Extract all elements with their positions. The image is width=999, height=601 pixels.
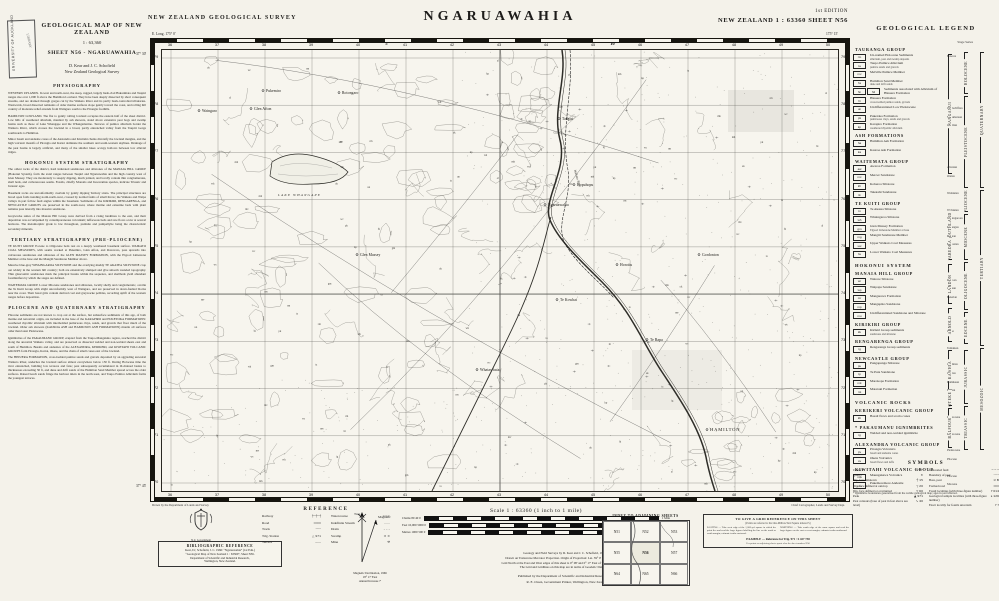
- stipple-dot: [804, 403, 805, 404]
- stipple-dot: [256, 421, 257, 422]
- section-paragraph: Basement rocks are unconformably overlai…: [8, 191, 146, 212]
- stipple-dot: [568, 478, 569, 479]
- reference-label: Terrace: [262, 540, 272, 544]
- legend-swatches: uw: [853, 242, 867, 249]
- stipple-dot: [831, 286, 832, 287]
- unit-code-label: wh: [484, 154, 488, 157]
- stipple-dot: [655, 453, 656, 454]
- legend-swatches: tn: [853, 208, 867, 215]
- stipple-dot: [649, 58, 650, 59]
- legend-entry-label: Taupo Pumice Alluviumpumice sands and gr…: [867, 62, 945, 69]
- swamp-symbol: [516, 463, 519, 465]
- contour-line: [526, 180, 536, 194]
- unit-code-label: mv: [675, 311, 679, 314]
- contour-line: [426, 188, 453, 196]
- unit-code-label: wc: [785, 323, 789, 326]
- stipple-dot: [661, 479, 662, 480]
- stipple-dot: [637, 121, 638, 122]
- declination-text: Magnetic Declination, 196618° 17' EastAn…: [340, 571, 400, 583]
- stipple-dot: [517, 255, 518, 256]
- scale-bar-left-label: Feet 10,000 5000 0: [402, 523, 426, 527]
- symbol-glyph: ┄┄┄: [992, 474, 999, 478]
- stipple-dot: [478, 480, 479, 481]
- contour-line: [214, 354, 237, 362]
- stipple-dot: [505, 248, 506, 249]
- contour-line: [271, 255, 308, 263]
- stipple-dot: [596, 211, 597, 212]
- stipple-dot: [563, 219, 564, 220]
- marginal-text-column: UNIVERSITY OF AUCKLAND LIBRARY GEOLOGICA…: [8, 16, 146, 383]
- unit-code-label: wc: [685, 343, 689, 346]
- stipple-dot: [492, 403, 493, 404]
- reference-glyph: ┼─┼─┼: [312, 514, 321, 518]
- stipple-dot: [202, 427, 203, 428]
- stipple-dot: [564, 255, 565, 256]
- town-dot: [706, 429, 708, 431]
- contour-line: [338, 449, 357, 470]
- stipple-dot: [622, 321, 623, 322]
- stream-line: [495, 374, 525, 409]
- stream-line: [789, 253, 801, 264]
- stipple-dot: [570, 388, 571, 389]
- stipple-dot: [469, 308, 470, 309]
- stipple-dot: [347, 393, 348, 394]
- stipple-dot: [769, 157, 770, 158]
- unit-code-label: mh: [732, 136, 736, 139]
- stipple-dot: [644, 100, 645, 101]
- legend-swatches: pv: [853, 448, 867, 455]
- stipple-dot: [801, 295, 802, 296]
- index-sheet-cell: N57: [660, 542, 689, 563]
- stipple-dot: [730, 384, 731, 385]
- stipple-dot: [301, 458, 302, 459]
- contour-line: [522, 195, 546, 213]
- swamp-symbol: [526, 337, 529, 339]
- symbol-row: Dip, face unknown┼ 15: [853, 479, 923, 483]
- unit-code-label: ig: [603, 146, 606, 149]
- grid-northing-left: 70: [154, 480, 158, 484]
- stipple-dot: [829, 434, 830, 435]
- legend-entry-label: Awaroa Formation: [867, 165, 945, 169]
- grid-easting-bottom: 47: [685, 493, 689, 497]
- stipple-dot: [785, 443, 786, 444]
- stipple-dot: [828, 393, 829, 394]
- legend-swatches: kk: [853, 329, 867, 336]
- reference-label: Trig. Station: [262, 534, 279, 538]
- stream-line: [634, 60, 649, 67]
- stipple-dot: [482, 201, 483, 202]
- legend-swatch: rg: [853, 346, 866, 353]
- stipple-dot: [625, 88, 626, 89]
- legend-entry-label: Mangarewa Formation: [867, 295, 945, 299]
- stipple-dot: [455, 420, 456, 421]
- stipple-dot: [419, 489, 420, 490]
- stipple-dot: [763, 408, 764, 409]
- stipple-dot: [603, 279, 604, 280]
- stipple-dot: [610, 435, 611, 436]
- unit-code-label: pk: [568, 74, 571, 77]
- stipple-dot: [652, 388, 653, 389]
- waikato-river: [548, 50, 715, 491]
- stream-line: [778, 239, 792, 297]
- stipple-dot: [458, 484, 459, 485]
- stipple-dot: [788, 463, 789, 464]
- stream-line: [167, 311, 183, 332]
- swamp-symbol: [520, 118, 523, 120]
- swamp-symbol: [504, 444, 507, 446]
- stipple-dot: [553, 155, 554, 156]
- symbol-row: Concealed fault─ ─ ─: [929, 469, 999, 473]
- stipple-dot: [591, 55, 592, 56]
- legend-swatch: mk: [853, 380, 866, 387]
- legend-entry-label: Wairere Siltstone: [867, 278, 945, 282]
- contour-line: [361, 153, 390, 163]
- stream-line: [478, 249, 501, 274]
- stipple-dot: [481, 167, 482, 168]
- stipple-dot: [657, 202, 658, 203]
- stipple-dot: [506, 453, 507, 454]
- unit-code-label: mh: [259, 195, 263, 198]
- stipple-dot: [754, 199, 755, 200]
- stipple-dot: [326, 429, 327, 430]
- legend-swatches: kh: [853, 183, 867, 190]
- stipple-dot: [474, 165, 475, 166]
- stipple-dot: [666, 236, 667, 237]
- contour-line: [540, 87, 555, 100]
- contour-line: [712, 411, 723, 424]
- contour-line: [176, 170, 186, 190]
- coat-of-arms: N.Z. Government: [186, 508, 216, 542]
- place-label: Gordonton: [702, 253, 719, 257]
- grid-northing-left: 73: [154, 338, 158, 342]
- contour-line: [424, 334, 436, 347]
- grid-easting-top: 42: [450, 43, 454, 47]
- stipple-dot: [739, 278, 740, 279]
- stipple-dot: [820, 112, 821, 113]
- legend-entry-name: Te Puia Sandstone: [870, 371, 945, 375]
- swamp-symbol: [568, 130, 571, 132]
- legend-swatches: hi: [853, 97, 867, 104]
- stipple-dot: [820, 319, 821, 320]
- legend-entry-name: Waipapa Sandstone: [870, 286, 945, 290]
- stipple-dot: [695, 97, 696, 98]
- contour-line: [737, 392, 746, 403]
- stipple-dot: [640, 129, 641, 130]
- index-sheet-cell: N53: [660, 521, 689, 542]
- neatline-right: [845, 38, 850, 502]
- legend-entry-label: Puketoka Formationpumiceous clays, sands…: [867, 115, 945, 122]
- stipple-dot: [706, 382, 707, 383]
- stipple-dot: [602, 393, 603, 394]
- reference-label: Drain: [331, 527, 339, 531]
- legend-entry-label: Te Puia Sandstone: [867, 371, 945, 375]
- stipple-dot: [734, 276, 735, 277]
- legend-entry-description: dune and drift sands: [870, 83, 945, 86]
- map-canvas: whkphiigwcokalwcmhgmwcmhigunwcgmwcpkokhi…: [162, 50, 838, 491]
- stipple-dot: [407, 417, 408, 418]
- stream-line: [514, 243, 552, 254]
- stipple-dot: [305, 380, 306, 381]
- swamp-symbol: [652, 286, 655, 288]
- latitude-top-label: 37° 30': [136, 52, 146, 56]
- unit-code-label: ta: [171, 483, 174, 486]
- unit-code-label: rm: [340, 140, 344, 143]
- contour-line: [732, 416, 751, 423]
- contour-line: [270, 392, 280, 407]
- stipple-dot: [623, 106, 624, 107]
- grid-northing-left: 75: [154, 244, 158, 248]
- stipple-dot: [559, 88, 560, 89]
- legend-entry: hsHamilton Sand Memberdune and drift san…: [853, 80, 971, 87]
- legend-entry-name: Hamilton Ash Formation: [870, 140, 945, 144]
- stipple-dot: [644, 52, 645, 53]
- stipple-dot: [830, 387, 831, 388]
- stipple-dot: [635, 182, 636, 183]
- stipple-dot: [362, 390, 363, 391]
- stipple-dot: [673, 258, 674, 259]
- stipple-dot: [789, 362, 790, 363]
- legend-entry: khKoheroa Siltstone: [853, 183, 971, 190]
- stream-line: [386, 391, 402, 420]
- legend-swatch: ha: [853, 140, 866, 147]
- legend-entry-name: Pungapunga Siltstone: [870, 362, 945, 366]
- stipple-dot: [502, 327, 503, 328]
- era-bracket: QUATERNARY: [980, 52, 983, 188]
- stipple-dot: [409, 421, 410, 422]
- coat-of-arms-icon: [186, 508, 216, 534]
- stipple-dot: [612, 276, 613, 277]
- stipple-dot: [637, 469, 638, 470]
- legend-swatch: mu: [853, 312, 866, 319]
- symbol-label: Dip, face defined at outcrop: [853, 485, 888, 489]
- grid-reference-northing: NORTHING — Take south edge of the same s…: [780, 526, 849, 535]
- stipple-dot: [594, 226, 595, 227]
- stipple-dot: [831, 275, 832, 276]
- reference-row: Track╌╌╌: [262, 527, 321, 531]
- stipple-dot: [599, 191, 600, 192]
- stipple-dot: [626, 232, 627, 233]
- stipple-dot: [231, 407, 232, 408]
- stipple-dot: [827, 444, 828, 445]
- stipple-dot: [507, 418, 508, 419]
- legend-entry-name: Welded and non-welded ignimbrite: [870, 432, 945, 436]
- town-dot: [544, 204, 546, 206]
- stipple-dot: [755, 314, 756, 315]
- stipple-dot: [552, 404, 553, 405]
- symbol-row: Bore, peat⊙ B: [929, 479, 999, 483]
- legend-swatches: ha: [853, 140, 867, 147]
- symbol-glyph: s 126: [989, 495, 999, 502]
- reference-glyph: △ 971: [312, 534, 321, 538]
- symbol-label: Peak: [853, 495, 859, 499]
- stipple-dot: [621, 451, 622, 452]
- grid-northing-right: 73: [841, 338, 845, 342]
- legend-entry-description: Elgood Limestone Member at base: [870, 229, 945, 232]
- swamp-symbol: [661, 188, 664, 190]
- unit-code-label: pk: [517, 314, 520, 317]
- stipple-dot: [245, 470, 246, 471]
- epoch-bracket: PLIOCENE: [964, 190, 967, 212]
- legend-swatch: wh: [853, 216, 866, 223]
- stipple-dot: [709, 247, 710, 248]
- stipple-dot: [777, 331, 778, 332]
- stipple-dot: [322, 443, 323, 444]
- stipple-dot: [792, 332, 793, 333]
- stipple-dot: [491, 388, 492, 389]
- stipple-dot: [652, 323, 653, 324]
- index-sheet-cell: N55: [603, 542, 632, 563]
- stipple-dot: [806, 386, 807, 387]
- stipple-dot: [394, 412, 395, 413]
- contour-line: [249, 309, 264, 330]
- unit-code-label: ok: [335, 183, 338, 186]
- legend-swatches: ka: [853, 149, 867, 156]
- stipple-dot: [309, 413, 310, 414]
- contour-line: [399, 412, 425, 427]
- stipple-dot: [762, 109, 763, 110]
- legend-entry-name: Undifferentiated Low Pleistocene: [870, 106, 945, 110]
- stipple-dot: [807, 352, 808, 353]
- stipple-dot: [692, 279, 693, 280]
- stipple-dot: [717, 87, 718, 88]
- stipple-dot: [699, 57, 700, 58]
- stipple-dot: [434, 403, 435, 404]
- stipple-dot: [614, 125, 615, 126]
- stamp-subtext: LIBRARY: [26, 33, 33, 48]
- swamp-symbol: [796, 389, 799, 391]
- contour-line: [297, 231, 327, 244]
- stipple-dot: [756, 424, 757, 425]
- stipple-dot: [476, 242, 477, 243]
- symbol-row: Dip, face defined or overturned┭ 60: [853, 490, 923, 494]
- stipple-dot: [826, 192, 827, 193]
- unit-code-label: wh: [586, 195, 590, 198]
- contour-line: [804, 434, 815, 446]
- stipple-dot: [660, 430, 661, 431]
- stipple-dot: [546, 342, 547, 343]
- stipple-dot: [739, 278, 740, 279]
- legend-swatches: wp: [853, 286, 867, 293]
- grid-easting-bottom: 44: [544, 493, 548, 497]
- stipple-dot: [525, 356, 526, 357]
- swamp-symbol: [774, 299, 777, 301]
- unit-code-label: ok: [742, 165, 745, 168]
- unit-code-label: mv: [738, 221, 742, 224]
- stipple-dot: [732, 337, 733, 338]
- stipple-dot: [686, 136, 687, 137]
- place-label: Ngaruawahia: [548, 203, 569, 207]
- stipple-dot: [347, 419, 348, 420]
- grid-easting-top: 49: [779, 43, 783, 47]
- road-line: [212, 174, 671, 443]
- unit-code-label: al: [821, 225, 823, 228]
- stipple-dot: [258, 446, 259, 447]
- legend-column-headers: Stage Series: [853, 40, 999, 44]
- contour-line: [394, 83, 419, 99]
- legend-entry-name: Awaroa Formation: [870, 165, 945, 169]
- symbol-row: Dip, face defined at outcrop┬ 20: [853, 485, 923, 489]
- unit-code-label: wh: [248, 365, 252, 368]
- stipple-dot: [711, 360, 712, 361]
- stipple-dot: [803, 150, 804, 151]
- stipple-dot: [646, 77, 647, 78]
- legend-swatches: hnh2: [853, 88, 881, 95]
- symbol-glyph: ────: [914, 469, 923, 473]
- stipple-dot: [811, 440, 812, 441]
- legend-entry: igWelded and non-welded ignimbritePleist…: [853, 432, 971, 439]
- swamp-symbol: [513, 277, 516, 279]
- stipple-dot: [476, 417, 477, 418]
- contour-line: [423, 207, 457, 227]
- unit-code-label: ta: [687, 69, 690, 72]
- stipple-dot: [526, 108, 527, 109]
- authors-line: D. Kear and J. C. Schofield: [38, 63, 146, 68]
- swamp-symbol: [669, 445, 672, 447]
- symbol-row: Contact────: [853, 469, 923, 473]
- stipple-dot: [269, 478, 270, 479]
- stipple-dot: [718, 202, 719, 203]
- stream-line: [647, 426, 673, 464]
- stipple-dot: [685, 218, 686, 219]
- stipple-dot: [828, 318, 829, 319]
- stipple-dot: [753, 158, 754, 159]
- stipple-dot: [602, 478, 603, 479]
- contour-line: [513, 195, 539, 213]
- legend-entry-label: Mangapiko Sandstone: [867, 303, 945, 307]
- stipple-dot: [559, 348, 560, 349]
- stipple-dot: [688, 355, 689, 356]
- stream-line: [571, 194, 604, 235]
- index-adjoining-sheets: INDEX TO ADJOINING SHEETS N51N52N53N55N5…: [598, 514, 693, 586]
- stipple-dot: [177, 471, 178, 472]
- stipple-dot: [340, 483, 341, 484]
- legend-entry: wrWairere SiltstonePuaroan: [853, 278, 971, 285]
- stream-line: [248, 269, 269, 279]
- stipple-dot: [176, 471, 177, 472]
- legend-entry-label: Whaingaroa Siltstone: [867, 216, 945, 220]
- stipple-dot: [753, 376, 754, 377]
- stipple-dot: [812, 113, 813, 114]
- legend-group-heading: NEWCASTLE GROUP: [855, 356, 971, 361]
- stipple-dot: [810, 131, 811, 132]
- stipple-dot: [721, 404, 722, 405]
- stipple-dot: [544, 329, 545, 330]
- unit-code-label: ok: [439, 267, 442, 270]
- stipple-dot: [615, 260, 616, 261]
- unit-code-label: gm: [392, 247, 396, 250]
- stipple-dot: [829, 446, 830, 447]
- stipple-dot: [586, 97, 587, 98]
- latitude-bottom-label: 37° 45': [136, 484, 146, 488]
- stream-line: [370, 359, 395, 401]
- legend-entry-label: Te Akatea Siltstone: [867, 208, 945, 212]
- stipple-dot: [647, 426, 648, 427]
- stipple-dot: [614, 61, 615, 62]
- stipple-dot: [692, 370, 693, 371]
- unit-code-label: wh: [466, 327, 470, 330]
- legend-group-heading: VOLCANIC ROCKS: [855, 400, 971, 405]
- stipple-dot: [771, 183, 772, 184]
- stipple-dot: [556, 239, 557, 240]
- stipple-dot: [531, 448, 532, 449]
- legend-swatch: h2: [867, 88, 880, 95]
- unit-code-label: wh: [211, 182, 215, 185]
- stipple-dot: [468, 124, 469, 125]
- stipple-dot: [188, 391, 189, 392]
- place-label: Glen Afton: [254, 107, 272, 111]
- stipple-dot: [705, 259, 706, 260]
- stipple-dot: [817, 469, 818, 470]
